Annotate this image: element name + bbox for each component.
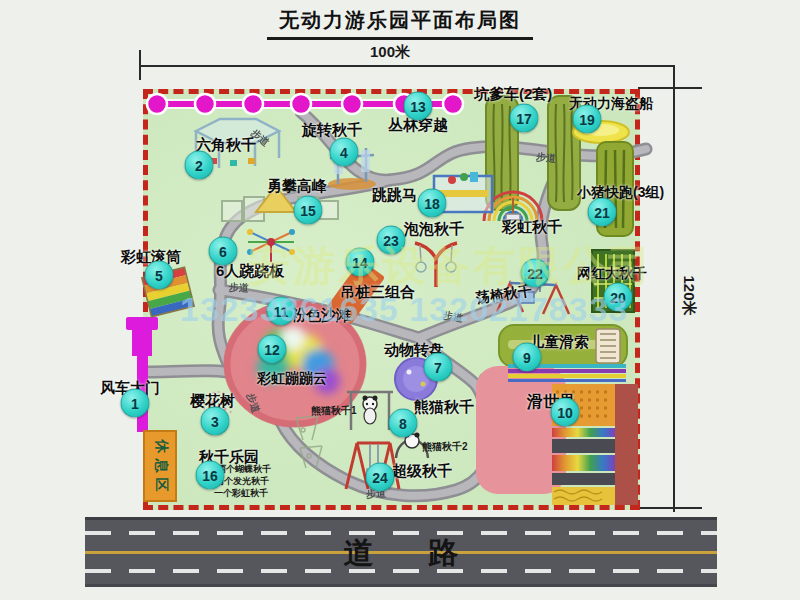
- attraction-label-15: 勇攀高峰: [267, 177, 327, 196]
- badge-1: 1: [121, 389, 150, 418]
- bubble-swing-icon: [415, 243, 457, 287]
- attraction-label-24: 超级秋千: [392, 462, 452, 481]
- badge-7: 7: [424, 353, 453, 382]
- attraction-label-12: 彩虹蹦蹦云: [257, 370, 327, 388]
- attraction-label-20: 网红大秋千: [577, 265, 647, 283]
- badge-24: 24: [366, 463, 395, 492]
- badge-2: 2: [185, 151, 214, 180]
- badge-8: 8: [389, 409, 418, 438]
- seesaw-icon: [247, 229, 295, 262]
- badge-11: 11: [267, 297, 296, 326]
- attraction-label-4: 旋转秋千: [302, 121, 362, 140]
- attraction-label-8: 熊猫秋千: [414, 398, 474, 417]
- sub-label-1: 熊猫秋千2: [422, 440, 468, 454]
- badge-14: 14: [346, 248, 375, 277]
- attraction-label-14: 吊桩三组合: [340, 283, 415, 302]
- badge-15: 15: [294, 196, 323, 225]
- sub-label-0: 熊猫秋千1: [311, 404, 357, 418]
- badge-21: 21: [588, 198, 617, 227]
- badge-23: 23: [377, 226, 406, 255]
- slide-world-icon: [476, 364, 638, 505]
- badge-12: 12: [258, 335, 287, 364]
- park-plan-screenshot: 无动力游乐园平面布局图 100米 120米: [0, 0, 800, 600]
- attraction-label-彩虹秋千: 彩虹秋千: [502, 218, 562, 237]
- attraction-label-11: 粉色沙滩: [291, 306, 351, 325]
- attraction-label-21: 小猪快跑(3组): [577, 184, 664, 202]
- badge-10: 10: [551, 398, 580, 427]
- sub-label-4: 一个彩虹秋千: [214, 487, 268, 500]
- badge-17: 17: [510, 104, 539, 133]
- badge-4: 4: [330, 138, 359, 167]
- walkway-label-2: 步道: [229, 280, 250, 295]
- attraction-label-17: 坑爹车(2套): [474, 85, 552, 104]
- badge-3: 3: [201, 407, 230, 436]
- badge-5: 5: [145, 261, 174, 290]
- attraction-label-18: 跳跳马: [372, 186, 417, 205]
- badge-6: 6: [209, 237, 238, 266]
- rest-area-label: 休息区: [152, 433, 170, 503]
- badge-16: 16: [196, 461, 225, 490]
- badge-18: 18: [418, 189, 447, 218]
- rest-area-box: 休息区: [143, 430, 177, 502]
- badge-13: 13: [404, 92, 433, 121]
- badge-19: 19: [573, 105, 602, 134]
- badge-22: 22: [521, 259, 550, 288]
- badge-20: 20: [604, 283, 633, 312]
- walkway-label-1: 步道: [535, 150, 556, 166]
- attraction-label-23: 泡泡秋千: [404, 220, 464, 239]
- road-label: 道路: [85, 533, 717, 574]
- road: 道路: [85, 517, 717, 587]
- badge-9: 9: [513, 343, 542, 372]
